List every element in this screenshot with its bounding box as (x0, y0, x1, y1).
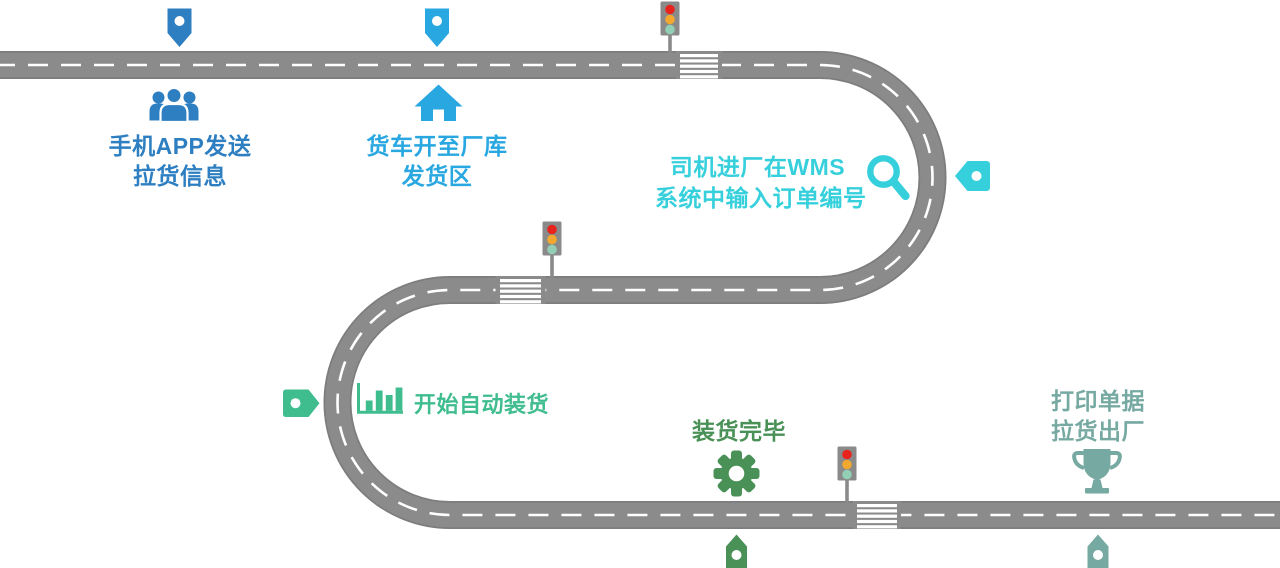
label-line: 系统中输入订单编号 (655, 183, 860, 214)
station-label-auto-loading: 开始自动装货 (414, 391, 549, 419)
label-line: 司机进厂在WMS (655, 152, 860, 183)
station-label-loading-complete: 装货完毕 (664, 417, 814, 445)
pin-down-icon (425, 9, 449, 48)
magnifier-icon (870, 158, 905, 196)
station-label-truck-to-warehouse: 货车开至厂库 发货区 (354, 131, 520, 191)
tag-left-icon (955, 161, 990, 191)
roadmap-scene (0, 0, 1280, 568)
label-line: 货车开至厂库 (354, 131, 520, 161)
crosswalk-3 (853, 501, 901, 529)
station-label-send-app-info: 手机APP发送 拉货信息 (99, 131, 261, 191)
label-line: 打印单据 (1013, 386, 1183, 416)
gear-icon (714, 451, 760, 497)
label-line: 拉货信息 (99, 161, 261, 191)
station-label-print-and-exit: 打印单据 拉货出厂 (1013, 386, 1183, 446)
label-line: 开始自动装货 (414, 391, 549, 419)
bar-chart-icon (359, 383, 404, 412)
label-line: 装货完毕 (664, 417, 814, 445)
users-icon (150, 88, 199, 122)
label-line: 手机APP发送 (99, 131, 261, 161)
crosswalk-1 (676, 51, 722, 79)
tag-right-icon (283, 390, 320, 418)
label-line: 拉货出厂 (1013, 416, 1183, 446)
station-label-wms-order-entry: 司机进厂在WMS 系统中输入订单编号 (655, 152, 860, 214)
pin-down-icon (168, 9, 192, 48)
pin-up-icon (726, 535, 747, 568)
crosswalk-2 (496, 276, 546, 304)
process-roadmap-diagram: 手机APP发送 拉货信息 货车开至厂库 发货区 司机进厂在WMS 系统中输入订单… (0, 0, 1280, 568)
trophy-icon (1074, 449, 1120, 494)
label-line: 发货区 (354, 161, 520, 191)
home-icon (415, 85, 463, 122)
pin-up-icon (1088, 535, 1109, 568)
traffic-light-icon (661, 2, 680, 54)
traffic-light-icon (838, 447, 857, 504)
traffic-light-icon (543, 222, 562, 279)
